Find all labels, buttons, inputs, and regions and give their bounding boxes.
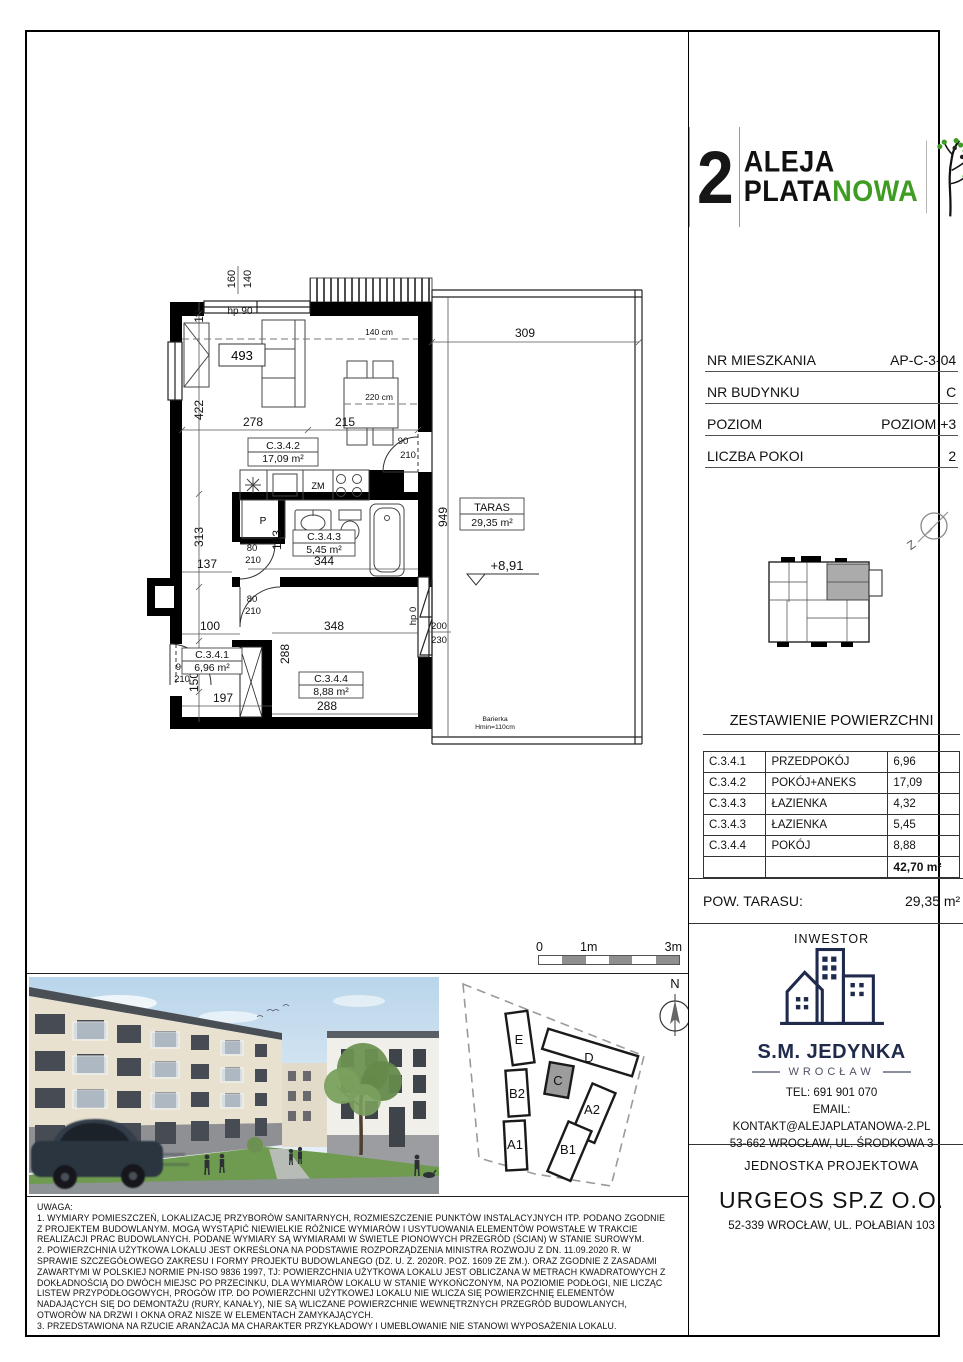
svg-text:C.3.4.4: C.3.4.4 bbox=[314, 673, 348, 685]
scale-bar: 0 1m 3m bbox=[538, 940, 680, 965]
design-unit-header: JEDNOSTKA PROJEKTOWA bbox=[689, 1159, 963, 1173]
note-line: LISTEW PRZYPODŁOGOWYCH, PROGÓW ITP. DO P… bbox=[37, 1288, 678, 1299]
svg-text:5,45 m²: 5,45 m² bbox=[306, 544, 342, 556]
north-compass: N bbox=[660, 976, 688, 1036]
rooms-count: 2 bbox=[948, 448, 956, 464]
svg-text:C.3.4.2: C.3.4.2 bbox=[266, 440, 300, 452]
chair bbox=[373, 428, 393, 445]
svg-text:278: 278 bbox=[243, 415, 263, 429]
drawing-sheet: ZM P bbox=[25, 30, 940, 1337]
level-mark-icon bbox=[467, 574, 485, 585]
investor-name: S.M. JEDYNKA bbox=[689, 1041, 963, 1064]
site-plan: E D C B2 A2 A1 B1 N bbox=[439, 974, 688, 1196]
svg-text:Hmin=110cm: Hmin=110cm bbox=[475, 724, 515, 731]
notes-block: UWAGA: 1. WYMIARY POMIESZCZEŃ, LOKALIZAC… bbox=[27, 1196, 688, 1335]
info-row-rooms: LICZBA POKOI 2 bbox=[705, 446, 958, 468]
bottom-row: E D C B2 A2 A1 B1 N bbox=[27, 973, 688, 1196]
svg-text:210: 210 bbox=[245, 606, 261, 617]
svg-text:C.3.4.1: C.3.4.1 bbox=[195, 649, 229, 661]
dishwasher-label: ZM bbox=[312, 481, 325, 491]
svg-text:D: D bbox=[584, 1050, 593, 1065]
info-row-building-number: NR BUDYNKU C bbox=[705, 382, 958, 404]
title-block-column: 2 ALEJA PLATANOWA bbox=[689, 32, 963, 1335]
tree-icon bbox=[922, 123, 963, 231]
key-plan: Z bbox=[689, 500, 963, 705]
svg-text:220 cm: 220 cm bbox=[365, 392, 393, 402]
investor-city: WROCŁAW bbox=[689, 1066, 963, 1078]
note-line: DOKŁADNOŚCIĄ DO DWÓCH MIEJSC PO PRZECINK… bbox=[37, 1278, 678, 1289]
svg-text:A2: A2 bbox=[584, 1102, 600, 1117]
level-value: +8,91 bbox=[491, 558, 524, 573]
svg-text:C.3.4.3: C.3.4.3 bbox=[307, 531, 341, 543]
dog bbox=[423, 1172, 435, 1178]
table-total-row: 42,70 m² bbox=[704, 857, 960, 878]
barrier-note: Barierka bbox=[482, 716, 508, 723]
note-line: OTWORÓW NA DRZWI I OKNA ORAZ NISZE W ELE… bbox=[37, 1310, 678, 1321]
floor-plan-area: ZM P bbox=[27, 32, 688, 973]
chair bbox=[347, 361, 367, 378]
svg-text:8,88 m²: 8,88 m² bbox=[313, 686, 349, 698]
sofa bbox=[262, 320, 305, 407]
svg-text:160: 160 bbox=[226, 270, 238, 288]
scale-1m: 1m bbox=[580, 940, 597, 954]
svg-text:137: 137 bbox=[197, 557, 217, 571]
scale-0: 0 bbox=[536, 940, 543, 954]
svg-text:949: 949 bbox=[436, 507, 450, 527]
project-logo: 2 ALEJA PLATANOWA bbox=[689, 32, 963, 322]
note-line: 2. POWIERZCHNIA UŻYTKOWA LOKALU JEST OKR… bbox=[37, 1245, 678, 1256]
svg-text:348: 348 bbox=[324, 619, 344, 633]
svg-text:100: 100 bbox=[200, 619, 220, 633]
info-row-level: POZIOM POZIOM +3 bbox=[705, 414, 958, 436]
note-line: ZAWARTYMI W POLSKIEJ NORMIE PN-ISO 9836 … bbox=[37, 1267, 678, 1278]
logo-word-2a: PLATA bbox=[744, 175, 832, 208]
svg-text:288: 288 bbox=[278, 644, 292, 664]
note-line: Z PROJEKTEM BUDOWLANYM. MOGĄ WYSTĄPIĆ NI… bbox=[37, 1224, 678, 1235]
svg-text:17,09 m²: 17,09 m² bbox=[262, 453, 304, 465]
west-label: Z bbox=[905, 537, 919, 553]
svg-text:hp 0: hp 0 bbox=[408, 607, 419, 626]
svg-text:29,35 m²: 29,35 m² bbox=[471, 517, 513, 529]
svg-text:309: 309 bbox=[515, 326, 535, 340]
info-row-apartment-number: NR MIESZKANIA AP-C-3-04 bbox=[705, 350, 958, 372]
note-line: 1. WYMIARY POMIESZCZEŃ, LOKALIZACJĘ PRZY… bbox=[37, 1213, 678, 1224]
bush bbox=[247, 1137, 263, 1153]
svg-text:A1: A1 bbox=[507, 1137, 523, 1152]
apartment-number: AP-C-3-04 bbox=[890, 352, 956, 368]
svg-text:215: 215 bbox=[335, 415, 355, 429]
fridge-symbol bbox=[245, 477, 261, 493]
design-unit-name: URGEOS SP.Z O.O. bbox=[689, 1187, 963, 1214]
svg-text:313: 313 bbox=[192, 527, 206, 547]
investor-logo-icon bbox=[773, 946, 891, 1034]
hatched-slab bbox=[310, 278, 432, 302]
terrace-area-row: POW. TARASU: 29,35 m² bbox=[689, 878, 963, 924]
logo-word-2b: NOWA bbox=[832, 175, 918, 208]
closet-label: P bbox=[260, 516, 267, 527]
floor-plan-drawing: ZM P bbox=[27, 32, 688, 973]
note-line: REALIZACJI PRAC BUDOWLANYCH. PODANE WYMI… bbox=[37, 1234, 678, 1245]
logo-number: 2 bbox=[694, 143, 735, 210]
total-area: 42,70 m² bbox=[888, 857, 960, 878]
unit-info-table: NR MIESZKANIA AP-C-3-04 NR BUDYNKU C POZ… bbox=[705, 350, 958, 478]
terrace-labels: TARAS 29,35 m² +8,91 Barierka Hmin=110cm bbox=[460, 498, 539, 731]
wardrobe bbox=[184, 323, 209, 387]
terrace-area-value: 29,35 m² bbox=[905, 893, 960, 909]
svg-text:210: 210 bbox=[174, 674, 190, 685]
table-row: C.3.4.3 ŁAZIENKA 4,32 bbox=[704, 794, 960, 815]
svg-text:210: 210 bbox=[400, 450, 416, 461]
ref-texts: 140 cm 220 cm bbox=[365, 327, 393, 402]
svg-text:422: 422 bbox=[192, 400, 206, 420]
svg-text:210: 210 bbox=[245, 555, 261, 566]
svg-text:80: 80 bbox=[247, 594, 258, 605]
note-line: SPRAWIE SZCZEGÓŁOWEGO ZAKRESU I FORMY PR… bbox=[37, 1256, 678, 1267]
svg-text:B2: B2 bbox=[509, 1086, 525, 1101]
logo-word-1: ALEJA bbox=[744, 147, 918, 177]
svg-text:18: 18 bbox=[192, 309, 206, 323]
building-render bbox=[27, 974, 439, 1196]
svg-text:B1: B1 bbox=[560, 1142, 576, 1157]
svg-text:230: 230 bbox=[431, 635, 447, 646]
bathtub bbox=[370, 504, 404, 576]
design-unit-block: JEDNOSTKA PROJEKTOWA URGEOS SP.Z O.O. 52… bbox=[689, 1145, 963, 1335]
north-label: N bbox=[670, 976, 679, 991]
notes-title: UWAGA: bbox=[37, 1202, 678, 1213]
svg-text:163: 163 bbox=[270, 530, 284, 550]
investor-header: INWESTOR bbox=[689, 932, 963, 946]
investor-email: KONTAKT@ALEJAPLATANOWA-2.PL bbox=[689, 1119, 963, 1136]
svg-text:E: E bbox=[515, 1032, 524, 1047]
svg-text:140 cm: 140 cm bbox=[365, 327, 393, 337]
svg-text:6,96 m²: 6,96 m² bbox=[194, 662, 230, 674]
chair bbox=[373, 361, 393, 378]
west-compass-icon: Z bbox=[900, 500, 958, 558]
svg-text:hp 90: hp 90 bbox=[227, 306, 252, 317]
svg-text:C: C bbox=[553, 1073, 562, 1088]
main-column: ZM P bbox=[27, 32, 689, 1335]
table-row: C.3.4.3 ŁAZIENKA 5,45 bbox=[704, 815, 960, 836]
level-value: POZIOM +3 bbox=[881, 416, 956, 432]
investor-phone: TEL: 691 901 070 bbox=[689, 1085, 963, 1102]
area-summary: ZESTAWIENIE POWIERZCHNI C.3.4.1 PRZEDPOK… bbox=[703, 713, 960, 878]
dim-493: 493 bbox=[231, 348, 253, 363]
svg-text:197: 197 bbox=[213, 691, 233, 705]
building-number: C bbox=[946, 384, 956, 400]
scale-3m: 3m bbox=[665, 940, 682, 954]
investor-contact: TEL: 691 901 070 EMAIL: KONTAKT@ALEJAPLA… bbox=[689, 1085, 963, 1153]
svg-text:80: 80 bbox=[247, 543, 258, 554]
table-row: C.3.4.4 POKÓJ 8,88 bbox=[704, 836, 960, 857]
svg-text:288: 288 bbox=[317, 699, 337, 713]
floor-key-plan bbox=[761, 552, 887, 657]
svg-text:140: 140 bbox=[242, 270, 254, 288]
area-table: C.3.4.1 PRZEDPOKÓJ 6,96 C.3.4.2 POKÓJ+AN… bbox=[703, 751, 960, 878]
chair bbox=[347, 428, 367, 445]
shaft bbox=[240, 647, 262, 717]
note-line: 3. PRZEDSTAWIONA NA RZUCIE ARANŻACJA MA … bbox=[37, 1321, 678, 1332]
design-unit-address: 52-339 WROCŁAW, UL. POŁABIAN 103 bbox=[689, 1220, 963, 1232]
table-row: C.3.4.2 POKÓJ+ANEKS 17,09 bbox=[704, 773, 960, 794]
svg-text:200: 200 bbox=[431, 621, 447, 632]
area-table-title: ZESTAWIENIE POWIERZCHNI bbox=[703, 713, 960, 735]
wall-notch bbox=[155, 586, 174, 608]
svg-text:90: 90 bbox=[398, 436, 409, 447]
svg-text:TARAS: TARAS bbox=[474, 502, 510, 514]
toilet bbox=[339, 510, 361, 520]
note-line: NADAJĄCYCH SIĘ DO DEMONTAŻU (RURY, KANAŁ… bbox=[37, 1299, 678, 1310]
table-row: C.3.4.1 PRZEDPOKÓJ 6,96 bbox=[704, 752, 960, 773]
investor-block: INWESTOR S.M. JEDYNKA bbox=[689, 924, 963, 1145]
